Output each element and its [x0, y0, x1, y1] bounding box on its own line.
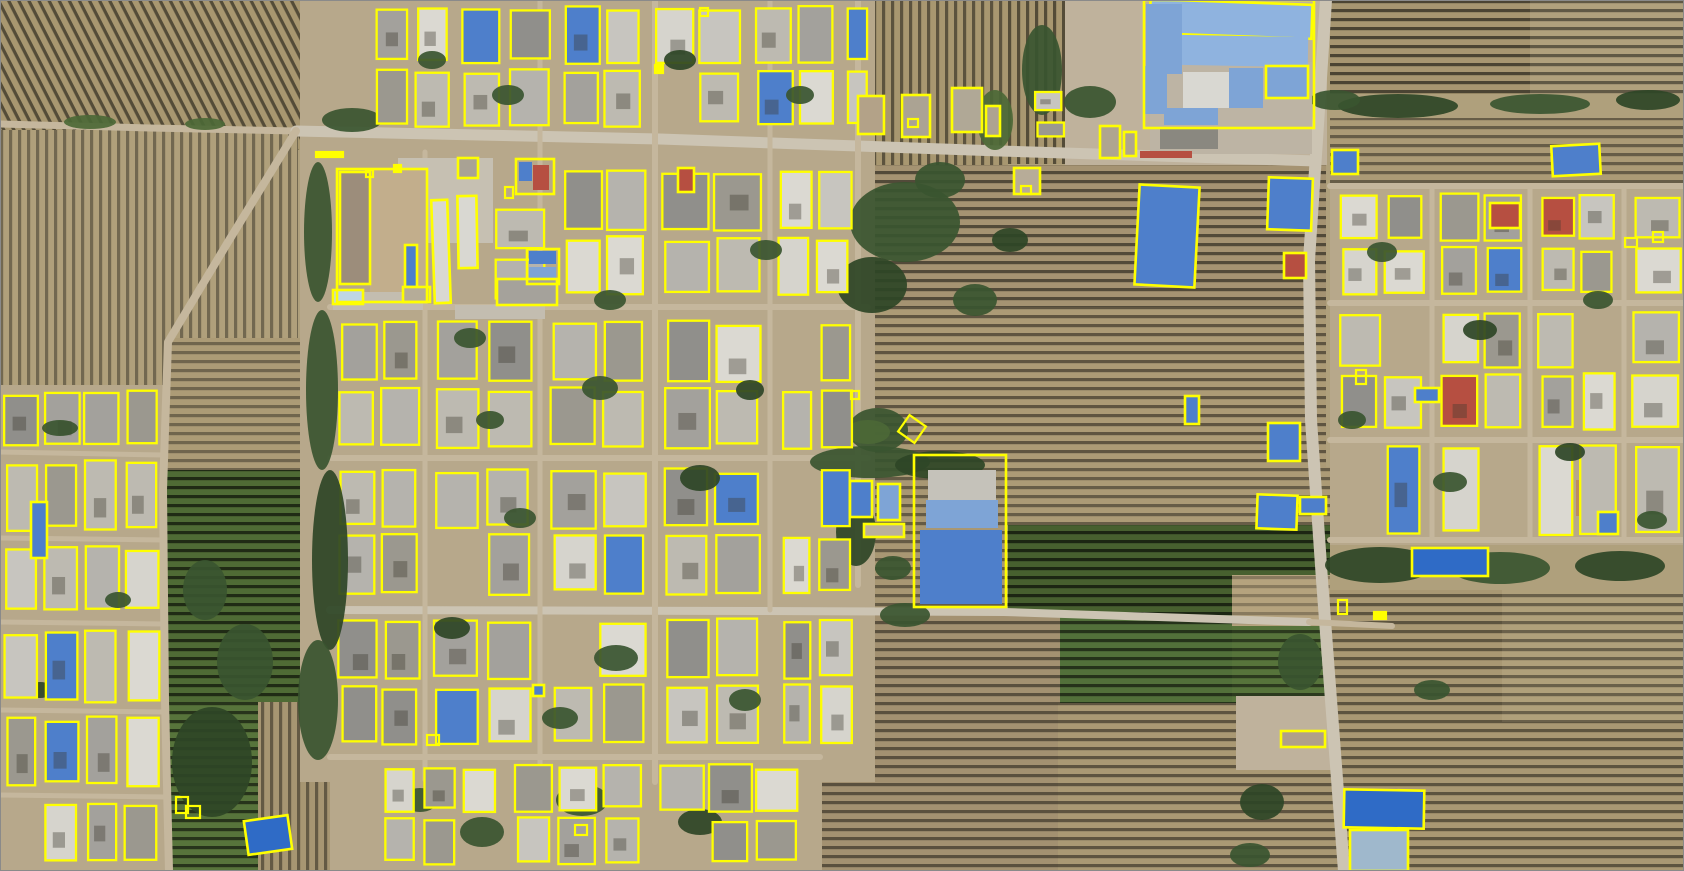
tree-canopy	[64, 115, 116, 129]
tree-canopy	[729, 689, 761, 711]
house-annotated	[779, 238, 809, 295]
house-annotated	[717, 619, 757, 676]
house-courtyard	[52, 577, 65, 594]
house-courtyard	[831, 715, 843, 731]
house-courtyard	[616, 93, 630, 109]
building	[1134, 184, 1199, 287]
house-annotated	[129, 632, 160, 701]
building	[529, 251, 556, 264]
house-annotated	[603, 392, 643, 446]
tree-canopy	[875, 556, 911, 580]
tree-canopy	[915, 162, 965, 198]
tree-canopy	[1064, 86, 1116, 118]
tree-canopy	[304, 162, 332, 302]
building	[864, 524, 904, 537]
tree-canopy	[504, 508, 536, 528]
house-annotated	[46, 722, 79, 781]
house-annotated	[1389, 196, 1422, 238]
building	[952, 88, 982, 132]
house-courtyard	[1590, 393, 1602, 409]
house-annotated	[339, 392, 372, 444]
building	[850, 481, 872, 517]
building	[431, 200, 451, 303]
building	[1183, 72, 1229, 108]
house-annotated	[5, 635, 37, 697]
building	[1124, 132, 1136, 156]
house-courtyard	[1646, 340, 1664, 354]
screenshot-root	[0, 0, 1684, 871]
building	[926, 500, 998, 528]
house-courtyard	[1651, 220, 1669, 231]
building	[458, 158, 478, 178]
building	[533, 165, 549, 190]
building	[1412, 548, 1488, 576]
house-courtyard	[393, 561, 407, 577]
house-annotated	[436, 473, 477, 528]
building	[928, 470, 996, 500]
building	[1143, 66, 1167, 114]
house-annotated	[757, 821, 796, 859]
house-annotated	[1340, 315, 1380, 365]
building	[405, 245, 417, 287]
house-courtyard	[729, 359, 747, 375]
building	[1300, 497, 1326, 514]
house-annotated	[488, 623, 530, 679]
house-annotated	[607, 171, 645, 230]
field-rows-texture	[1330, 118, 1684, 186]
house-annotated	[605, 536, 643, 594]
building	[31, 502, 47, 558]
road	[0, 622, 164, 624]
house-courtyard	[394, 710, 407, 725]
house-annotated	[384, 322, 416, 379]
field-rows-texture	[868, 307, 1326, 467]
building	[1229, 68, 1263, 108]
building	[1268, 423, 1300, 461]
house-annotated	[605, 322, 642, 381]
house-courtyard	[682, 711, 698, 726]
house-annotated	[817, 241, 847, 292]
house-annotated	[385, 818, 413, 860]
tree-canopy	[434, 617, 470, 639]
house-annotated	[464, 770, 495, 812]
tree-canopy	[454, 328, 486, 348]
house-courtyard	[826, 641, 839, 656]
house-annotated	[381, 388, 419, 445]
house-annotated	[667, 620, 708, 677]
house-courtyard	[564, 844, 579, 857]
house-courtyard	[568, 494, 586, 510]
house-courtyard	[1395, 483, 1408, 507]
tree-canopy	[680, 465, 720, 491]
house-annotated	[46, 465, 76, 525]
building	[1146, 4, 1182, 74]
building	[1267, 177, 1313, 231]
house-annotated	[342, 324, 377, 379]
house-annotated	[424, 768, 454, 807]
house-annotated	[716, 535, 759, 593]
house-courtyard	[392, 654, 405, 670]
road	[1309, 622, 1392, 626]
house-annotated	[7, 718, 35, 786]
tree-canopy	[298, 640, 338, 760]
house-annotated	[822, 391, 852, 448]
house-courtyard	[449, 649, 466, 664]
building	[1266, 66, 1308, 98]
tree-canopy	[1555, 443, 1585, 461]
building	[519, 162, 532, 181]
house-courtyard	[765, 100, 779, 115]
building	[1185, 396, 1199, 424]
house-courtyard	[503, 564, 519, 581]
house-annotated	[1442, 247, 1476, 294]
tree-canopy	[664, 50, 696, 70]
house-annotated	[1581, 252, 1611, 292]
road	[0, 538, 164, 540]
house-courtyard	[1395, 268, 1411, 280]
building	[1160, 127, 1218, 149]
building	[1256, 494, 1297, 529]
building	[1332, 150, 1358, 174]
house-annotated	[84, 393, 118, 444]
tree-canopy	[1240, 784, 1284, 820]
tree-canopy	[322, 108, 382, 132]
house-courtyard	[98, 753, 110, 772]
annotation-mark	[394, 165, 401, 172]
house-annotated	[127, 718, 158, 786]
house-courtyard	[678, 499, 695, 515]
building	[678, 168, 694, 192]
house-annotated	[781, 172, 812, 228]
house-annotated	[1441, 194, 1479, 241]
tree-canopy	[1575, 551, 1665, 581]
building	[533, 685, 544, 696]
house-courtyard	[827, 269, 839, 283]
house-courtyard	[94, 498, 106, 517]
tree-canopy	[582, 376, 618, 400]
house-annotated	[343, 686, 377, 741]
house-annotated	[496, 210, 544, 248]
field-rows-texture	[1530, 0, 1684, 94]
house-courtyard	[569, 563, 585, 578]
house-courtyard	[422, 102, 435, 117]
house-courtyard	[826, 568, 838, 582]
annotation-mark	[316, 152, 343, 157]
tree-canopy	[736, 380, 764, 400]
house-annotated	[377, 70, 407, 124]
house-courtyard	[433, 790, 445, 801]
house-courtyard	[353, 654, 368, 670]
tree-canopy	[594, 645, 638, 671]
house-annotated	[784, 538, 810, 593]
building	[1164, 108, 1218, 125]
satellite-map-canvas	[0, 0, 1684, 871]
house-annotated	[1636, 249, 1680, 293]
house-courtyard	[1498, 340, 1512, 355]
house-courtyard	[498, 346, 515, 363]
tree-canopy	[105, 592, 131, 608]
house-courtyard	[132, 496, 144, 514]
house-annotated	[85, 631, 115, 703]
house-annotated	[560, 768, 597, 811]
house-annotated	[386, 622, 420, 679]
house-courtyard	[346, 499, 359, 514]
house-annotated	[665, 242, 709, 292]
tree-canopy	[1338, 411, 1366, 429]
tree-canopy	[1414, 680, 1450, 700]
house-annotated	[416, 73, 449, 127]
house-courtyard	[574, 35, 588, 51]
house-courtyard	[678, 413, 696, 430]
yard-pad	[455, 305, 545, 319]
house-annotated	[604, 765, 641, 806]
building	[1344, 789, 1425, 828]
road	[0, 795, 166, 797]
house-courtyard	[620, 258, 634, 274]
house-courtyard	[424, 32, 435, 46]
tree-canopy	[1367, 242, 1397, 262]
tree-canopy	[594, 290, 626, 310]
annotation-mark	[655, 65, 663, 73]
tree-canopy	[418, 51, 446, 69]
house-annotated	[128, 391, 157, 443]
road	[0, 452, 164, 455]
building	[1180, 35, 1309, 67]
house-annotated	[436, 690, 478, 744]
house-annotated	[565, 171, 602, 228]
building	[1014, 168, 1040, 194]
house-courtyard	[446, 417, 463, 433]
house-courtyard	[509, 231, 528, 242]
house-courtyard	[730, 713, 746, 729]
building	[1551, 144, 1601, 176]
tree-canopy	[306, 310, 338, 470]
house-annotated	[1442, 376, 1478, 426]
house-courtyard	[395, 353, 408, 369]
house-courtyard	[794, 566, 804, 581]
house-courtyard	[792, 643, 802, 659]
tree-canopy	[1310, 90, 1360, 110]
building	[1281, 731, 1325, 747]
tree-canopy	[476, 411, 504, 429]
tree-canopy	[786, 86, 814, 104]
house-courtyard	[1352, 214, 1366, 226]
house-annotated	[1634, 312, 1679, 362]
house-annotated	[848, 9, 867, 59]
house-annotated	[554, 324, 596, 380]
house-annotated	[604, 685, 643, 742]
house-courtyard	[1348, 268, 1361, 281]
building	[244, 815, 292, 855]
house-annotated	[125, 806, 157, 860]
tree-canopy	[312, 470, 348, 650]
house-courtyard	[498, 720, 514, 735]
building	[986, 106, 1000, 136]
house-courtyard	[1646, 491, 1663, 515]
house-annotated	[799, 6, 833, 62]
road	[0, 710, 164, 712]
house-annotated	[462, 9, 499, 63]
house-annotated	[1632, 376, 1678, 427]
tree-canopy	[185, 118, 225, 130]
house-courtyard	[94, 826, 105, 842]
house-courtyard	[53, 832, 65, 848]
house-courtyard	[1548, 220, 1561, 231]
tree-canopy	[172, 707, 252, 817]
house-annotated	[1486, 374, 1521, 427]
house-courtyard	[1548, 399, 1560, 413]
house-courtyard	[1453, 404, 1467, 418]
house-annotated	[819, 539, 850, 589]
house-courtyard	[17, 754, 28, 773]
building	[1100, 126, 1120, 158]
building	[878, 484, 900, 520]
tree-canopy	[992, 228, 1028, 252]
tree-canopy	[953, 284, 997, 316]
tree-canopy	[183, 560, 227, 620]
house-annotated	[127, 463, 156, 527]
house-courtyard	[789, 705, 799, 721]
house-courtyard	[570, 789, 585, 801]
house-courtyard	[13, 417, 26, 431]
house-courtyard	[730, 195, 749, 211]
house-courtyard	[53, 661, 66, 680]
building	[1415, 388, 1439, 402]
tree-canopy	[1637, 511, 1667, 529]
house-annotated	[819, 172, 851, 228]
house-annotated	[567, 241, 600, 293]
tree-canopy	[1490, 94, 1590, 114]
house-courtyard	[722, 790, 739, 803]
building	[858, 96, 884, 134]
house-courtyard	[1495, 274, 1508, 286]
tree-canopy	[217, 624, 273, 700]
tree-canopy	[1433, 472, 1467, 492]
tree-canopy	[1583, 291, 1613, 309]
house-annotated	[604, 474, 645, 527]
house-courtyard	[1653, 271, 1671, 283]
house-annotated	[668, 321, 709, 381]
building	[1140, 151, 1192, 158]
building	[457, 196, 477, 268]
house-courtyard	[54, 752, 67, 769]
field-rows-texture	[1502, 590, 1684, 722]
house-annotated	[822, 470, 850, 526]
house-courtyard	[1588, 211, 1602, 223]
house-courtyard	[1644, 403, 1662, 417]
house-annotated	[565, 73, 598, 123]
building	[1284, 253, 1306, 278]
annotation-mark	[1374, 612, 1386, 619]
house-annotated	[424, 820, 454, 864]
house-courtyard	[1392, 396, 1406, 410]
tree-canopy	[1230, 843, 1270, 867]
house-courtyard	[347, 556, 361, 572]
tree-canopy	[750, 240, 782, 260]
house-annotated	[607, 11, 638, 63]
house-annotated	[1038, 123, 1064, 137]
house-courtyard	[613, 838, 626, 850]
tree-canopy	[1278, 634, 1322, 690]
building	[1598, 512, 1618, 534]
tree-canopy	[42, 420, 78, 436]
house-annotated	[511, 10, 550, 58]
building	[902, 95, 930, 137]
house-courtyard	[1554, 269, 1566, 281]
house-annotated	[660, 766, 703, 810]
house-annotated	[783, 392, 811, 449]
house-annotated	[45, 393, 80, 444]
house-annotated	[85, 460, 116, 529]
house-courtyard	[1040, 99, 1050, 104]
house-annotated	[756, 770, 797, 811]
building	[1350, 830, 1408, 871]
house-annotated	[87, 717, 116, 783]
house-courtyard	[728, 498, 745, 512]
house-courtyard	[682, 563, 698, 579]
house-courtyard	[1449, 273, 1463, 286]
house-courtyard	[393, 790, 404, 802]
tree-canopy	[492, 85, 524, 105]
house-annotated	[515, 765, 552, 812]
tree-canopy	[460, 817, 504, 847]
house-annotated	[518, 817, 549, 861]
house-annotated	[822, 325, 850, 380]
house-annotated	[555, 535, 596, 589]
tree-canopy	[542, 707, 578, 729]
house-annotated	[709, 764, 752, 811]
house-annotated	[1538, 314, 1572, 367]
house-courtyard	[789, 204, 801, 220]
house-annotated	[699, 11, 740, 63]
building	[1490, 203, 1520, 228]
building	[920, 530, 1002, 604]
house-courtyard	[386, 32, 398, 46]
house-annotated	[713, 822, 747, 861]
house-annotated	[383, 470, 416, 527]
house-courtyard	[708, 91, 723, 104]
tree-canopy	[1463, 320, 1497, 340]
building	[340, 172, 370, 284]
house-courtyard	[473, 95, 487, 109]
tree-canopy	[1616, 90, 1680, 110]
house-courtyard	[762, 33, 776, 48]
